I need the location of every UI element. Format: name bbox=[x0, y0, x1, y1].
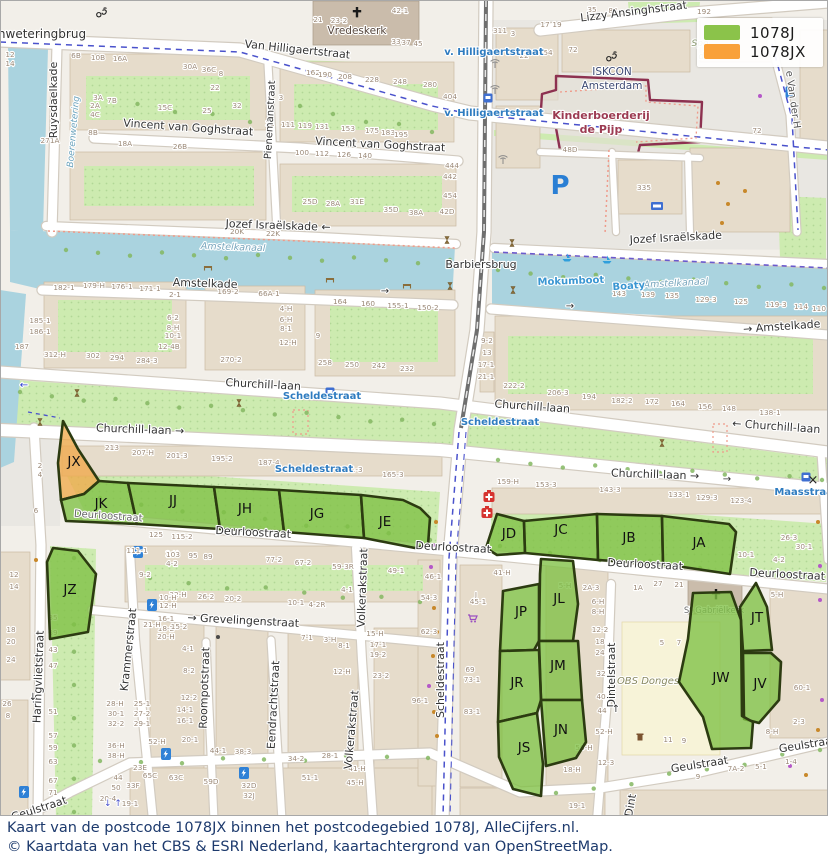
house-number: 125 bbox=[734, 297, 748, 306]
house-number: 50 bbox=[111, 783, 121, 792]
house-number: 1-4 bbox=[785, 757, 797, 766]
house-number: 14-1 bbox=[177, 705, 194, 714]
house-number: 2 bbox=[38, 461, 43, 470]
house-number: 46-1 bbox=[425, 572, 442, 581]
house-number: 54 bbox=[543, 48, 553, 57]
house-number: 59D bbox=[204, 777, 219, 786]
street-label: → bbox=[723, 474, 731, 485]
house-number: 67-2 bbox=[295, 558, 312, 567]
postcode-label-JT: JT bbox=[750, 610, 764, 626]
house-number: 8 bbox=[6, 711, 11, 720]
postcode-label-JJ: JJ bbox=[168, 493, 177, 509]
house-number: 44-1 bbox=[210, 746, 227, 755]
tree bbox=[224, 256, 228, 260]
caption-line-2: © Kaartdata van het CBS & ESRI Nederland… bbox=[7, 838, 828, 857]
house-number: 284-3 bbox=[136, 356, 158, 365]
house-number: 9-2 bbox=[481, 336, 493, 345]
poi-dot bbox=[435, 734, 439, 738]
house-number: 11 bbox=[663, 735, 672, 744]
cart-icon-part bbox=[471, 621, 473, 623]
tree bbox=[262, 757, 266, 761]
tree bbox=[384, 258, 388, 262]
house-number: 18 bbox=[6, 625, 16, 634]
house-number: 65C bbox=[143, 771, 157, 780]
street-label: nweteringbrug bbox=[0, 27, 86, 41]
postcode-label-JZ: JZ bbox=[62, 582, 76, 598]
screenshot: P×6B10B16A30A36C8223A7B15C25322A4C8B271A… bbox=[0, 0, 828, 861]
house-number: 213 bbox=[105, 443, 119, 452]
house-number: 26 bbox=[2, 699, 12, 708]
street-label: → bbox=[566, 301, 574, 312]
house-number: 30A bbox=[183, 62, 197, 71]
house-number: 63 bbox=[48, 757, 58, 766]
house-number: 20-H bbox=[157, 632, 174, 641]
house-number: 2-1 bbox=[169, 290, 181, 299]
house-number: 4-2 bbox=[773, 555, 785, 564]
house-number: 195-2 bbox=[211, 454, 232, 463]
poi-label: OBS Donges bbox=[617, 676, 679, 687]
house-number: 32-2 bbox=[108, 719, 125, 728]
house-number: 182-2 bbox=[611, 396, 632, 405]
house-number: 29-1 bbox=[134, 719, 151, 728]
house-number: 33F bbox=[126, 781, 139, 790]
house-number: 42-1 bbox=[392, 6, 409, 15]
house-number: 131 bbox=[315, 122, 329, 131]
house-number: 12 bbox=[5, 50, 14, 59]
house-number: 8-2 bbox=[183, 666, 195, 675]
tree bbox=[528, 462, 532, 466]
postcode-label-JP: JP bbox=[514, 604, 527, 620]
tree bbox=[430, 130, 434, 134]
house-number: 15-2 bbox=[171, 622, 188, 631]
house-number: 38A bbox=[409, 208, 423, 217]
house-number: 172 bbox=[645, 397, 659, 406]
house-number: 4-H bbox=[280, 304, 293, 313]
trash-icon-part bbox=[637, 734, 644, 736]
house-number: 21 bbox=[313, 15, 322, 24]
courtyard-dots bbox=[84, 166, 254, 206]
house-number: 133-1 bbox=[668, 490, 689, 499]
house-number: 83-1 bbox=[464, 707, 481, 716]
house-number: 21-H bbox=[143, 620, 160, 629]
tree bbox=[221, 756, 225, 760]
house-number: 59 bbox=[48, 743, 58, 752]
house-number: 119-3 bbox=[765, 300, 787, 309]
postcode-label-JD: JD bbox=[501, 526, 516, 542]
house-number: 140 bbox=[358, 151, 372, 160]
house-number: 6-H bbox=[592, 597, 605, 606]
tree bbox=[368, 419, 372, 423]
house-number: 111 bbox=[281, 120, 295, 129]
house-number: 9 bbox=[696, 772, 701, 781]
house-number: 31E bbox=[350, 197, 364, 206]
house-number: 59-3R bbox=[332, 562, 354, 571]
house-number: 194 bbox=[582, 392, 596, 401]
house-number: 100 bbox=[295, 148, 309, 157]
house-number: 25-1 bbox=[134, 699, 151, 708]
postcode-label-JS: JS bbox=[517, 740, 531, 756]
house-number: 242 bbox=[372, 361, 386, 370]
tree bbox=[416, 261, 420, 265]
house-number: 45-1 bbox=[470, 597, 487, 606]
house-number: 442 bbox=[443, 172, 457, 181]
trash-icon bbox=[637, 734, 644, 741]
house-number: 5-1 bbox=[755, 762, 767, 771]
house-number: 12-2 bbox=[592, 625, 609, 634]
house-number: 150-2 bbox=[417, 303, 438, 312]
house-number: 187 bbox=[15, 342, 29, 351]
house-number: 9 bbox=[316, 331, 321, 340]
postcode-label-JB: JB bbox=[621, 530, 635, 546]
house-number: 138-1 bbox=[759, 408, 780, 417]
house-number: 19 bbox=[552, 20, 562, 29]
house-number: 17-1 bbox=[478, 360, 495, 369]
house-number: 190 bbox=[318, 70, 332, 79]
house-number: 114 bbox=[794, 302, 808, 311]
house-number: 135 bbox=[665, 291, 679, 300]
house-number: 139 bbox=[641, 290, 655, 299]
tree bbox=[302, 590, 306, 594]
house-number: 228 bbox=[365, 75, 379, 84]
house-number: 6-H bbox=[280, 315, 293, 324]
house-number: 62-3 bbox=[421, 627, 438, 636]
house-number: 14 bbox=[9, 582, 19, 591]
house-number: 18 bbox=[595, 637, 605, 646]
house-number: 38-H bbox=[107, 751, 124, 760]
street-label: Boaty bbox=[612, 280, 646, 293]
road-zijstraat-2 bbox=[688, 155, 690, 232]
courtyard-dots bbox=[145, 565, 423, 591]
tree bbox=[225, 586, 229, 590]
tree bbox=[432, 422, 436, 426]
tree bbox=[96, 251, 100, 255]
house-number: 4 bbox=[38, 470, 43, 479]
house-number: 15C bbox=[158, 103, 172, 112]
tree bbox=[192, 253, 196, 257]
house-number: 258 bbox=[318, 358, 332, 367]
street-label: Scheldestraat bbox=[275, 464, 354, 475]
courtyard-dots bbox=[292, 176, 442, 212]
poi-dot bbox=[816, 728, 820, 732]
house-number: 32J bbox=[243, 791, 254, 800]
tree bbox=[757, 285, 761, 289]
street-label: v. Hilligaertstraat bbox=[444, 108, 544, 119]
house-number: 148 bbox=[722, 404, 736, 413]
postcode-label-JX: JX bbox=[66, 454, 80, 470]
house-number: 19-1 bbox=[569, 801, 586, 810]
tree bbox=[81, 398, 85, 402]
poi-dot bbox=[720, 221, 724, 225]
house-number: 19-1 bbox=[122, 799, 139, 808]
house-number: 23-2 bbox=[373, 671, 390, 680]
house-number: 207-H bbox=[132, 448, 154, 457]
street-label: ↑ bbox=[612, 704, 620, 715]
trash-icon-part bbox=[638, 735, 643, 741]
house-number: 454 bbox=[443, 191, 457, 200]
house-number: 9-2 bbox=[139, 570, 151, 579]
house-number: 125 bbox=[149, 530, 163, 539]
house-number: 51-1 bbox=[302, 773, 319, 782]
poi-label: de Pijp bbox=[580, 123, 623, 136]
poi-dot bbox=[818, 564, 822, 568]
street-label: Barbiersbrug bbox=[445, 258, 516, 271]
map-caption: Kaart van de postcode 1078JX binnen het … bbox=[0, 816, 828, 861]
house-number: 126 bbox=[337, 150, 351, 159]
street-label: Scheldestraat bbox=[461, 417, 540, 428]
tree bbox=[248, 120, 252, 124]
house-number: 49-1 bbox=[388, 566, 405, 575]
postcode-label-JE: JE bbox=[378, 514, 392, 530]
sign-icon-part bbox=[653, 205, 661, 208]
poi-dot bbox=[726, 202, 730, 206]
postcode-label-JK: JK bbox=[94, 496, 109, 512]
house-number: 112 bbox=[315, 149, 329, 158]
house-number: 8 bbox=[219, 69, 224, 78]
house-number: 444 bbox=[445, 161, 459, 170]
house-number: 280 bbox=[423, 80, 437, 89]
tree bbox=[135, 102, 139, 106]
house-number: 12-2 bbox=[181, 693, 198, 702]
house-number: 27-2 bbox=[134, 709, 151, 718]
tree bbox=[50, 394, 54, 398]
street-label: ↓ ↑ bbox=[104, 799, 122, 809]
tree bbox=[113, 397, 117, 401]
tree bbox=[364, 120, 368, 124]
house-number: 25 bbox=[202, 106, 211, 115]
house-number: 175 bbox=[365, 126, 379, 135]
house-number: 3 bbox=[511, 29, 516, 38]
postcode-label-JG: JG bbox=[309, 506, 324, 522]
street-label: Mokumboot bbox=[537, 275, 604, 288]
house-number: 159-H bbox=[497, 477, 519, 486]
house-number: 33 bbox=[391, 37, 401, 46]
courtyard-dots bbox=[508, 336, 813, 394]
house-number: 153 bbox=[341, 124, 355, 133]
tree bbox=[64, 248, 68, 252]
house-number: 3-H bbox=[324, 635, 337, 644]
house-number: 5-H bbox=[771, 590, 784, 599]
house-number: 52-H bbox=[595, 727, 612, 736]
house-number: 335 bbox=[637, 183, 651, 192]
poi-dot bbox=[716, 181, 720, 185]
house-number: 26-3 bbox=[781, 533, 798, 542]
postcode-label-JW: JW bbox=[711, 670, 729, 686]
house-number: 35D bbox=[384, 205, 399, 214]
house-number: 17 bbox=[540, 20, 550, 29]
house-number: 47 bbox=[48, 661, 58, 670]
street-label: ↓ bbox=[29, 692, 37, 703]
tree bbox=[298, 104, 302, 108]
house-number: 32D bbox=[242, 781, 257, 790]
house-number: 36-H bbox=[107, 741, 124, 750]
house-number: 19-2 bbox=[370, 650, 387, 659]
house-number: 111-1 bbox=[126, 546, 147, 555]
house-number: 36C bbox=[202, 65, 216, 74]
house-number: 4-2 bbox=[166, 559, 178, 568]
tree bbox=[397, 122, 401, 126]
house-number: 30-1 bbox=[108, 709, 125, 718]
house-number: 48D bbox=[563, 145, 578, 154]
house-number: 12-3 bbox=[598, 758, 615, 767]
poi-dot bbox=[216, 635, 220, 639]
house-number: 41-H bbox=[493, 568, 510, 577]
house-number: 43 bbox=[48, 645, 58, 654]
tree bbox=[593, 463, 597, 467]
house-number: 12 bbox=[9, 570, 18, 579]
tree bbox=[755, 476, 759, 480]
house-number: 8-1 bbox=[338, 641, 350, 650]
house-number: 222-2 bbox=[503, 381, 524, 390]
house-number: 6 bbox=[34, 506, 39, 515]
street-label: Scheldestraat bbox=[434, 641, 447, 718]
tree bbox=[426, 756, 430, 760]
house-number: 10B bbox=[91, 53, 105, 62]
road-zijstraat-1 bbox=[612, 152, 616, 232]
bus-icon bbox=[484, 94, 493, 103]
tree bbox=[180, 761, 184, 765]
poi-dot bbox=[816, 520, 820, 524]
street-label: ← bbox=[20, 380, 28, 391]
building bbox=[690, 148, 790, 232]
legend-swatch-1078JX bbox=[704, 44, 740, 59]
parkP-icon-part: P bbox=[550, 171, 569, 201]
building bbox=[620, 790, 828, 816]
ev-icon bbox=[161, 748, 171, 760]
courtyard-dots bbox=[58, 300, 172, 352]
house-number: 103 bbox=[166, 550, 180, 559]
house-number: 192 bbox=[697, 7, 711, 16]
house-number: 160 bbox=[361, 299, 375, 308]
house-number: 182-1 bbox=[53, 283, 74, 292]
tree bbox=[379, 595, 383, 599]
poi-label: ISKCON bbox=[592, 66, 632, 78]
house-number: 5 bbox=[660, 638, 665, 647]
house-number: 63C bbox=[169, 773, 183, 782]
house-number: 164 bbox=[333, 297, 347, 306]
tree bbox=[241, 408, 245, 412]
house-number: 95 bbox=[188, 551, 197, 560]
tree bbox=[320, 258, 324, 262]
house-number: 18A bbox=[118, 139, 132, 148]
poi-dot bbox=[427, 684, 431, 688]
house-number: 185-1 bbox=[29, 316, 50, 325]
house-number: 21-1 bbox=[478, 372, 495, 381]
house-number: 12-H bbox=[159, 601, 176, 610]
house-number: 54-3 bbox=[421, 593, 438, 602]
map-container[interactable]: P×6B10B16A30A36C8223A7B15C25322A4C8B271A… bbox=[0, 0, 828, 816]
house-number: 51 bbox=[48, 707, 57, 716]
house-number: 153-3 bbox=[535, 480, 557, 489]
cart-icon-part bbox=[474, 621, 476, 623]
house-number: 22 bbox=[210, 83, 219, 92]
house-number: 45 bbox=[413, 39, 422, 48]
house-number: 164 bbox=[671, 399, 685, 408]
street-label: Amstelkanaal bbox=[200, 241, 266, 254]
house-number: 20 bbox=[6, 637, 16, 646]
house-number: 20-2 bbox=[225, 594, 242, 603]
tree bbox=[400, 417, 404, 421]
poi-label: Amsterdam bbox=[582, 80, 643, 92]
house-number: 201-3 bbox=[166, 451, 188, 460]
house-number: 179-H bbox=[83, 281, 105, 290]
house-number: 25D bbox=[303, 197, 318, 206]
house-number: 176-1 bbox=[111, 282, 132, 291]
ev-icon bbox=[147, 599, 157, 611]
house-number: 15-H bbox=[366, 629, 383, 638]
poi-dot bbox=[432, 606, 436, 610]
house-number: 311 bbox=[493, 26, 507, 35]
house-number: 186-1 bbox=[29, 327, 50, 336]
house-number: 8-1 bbox=[280, 324, 292, 333]
house-number: 156 bbox=[698, 402, 712, 411]
tree bbox=[629, 782, 633, 786]
street-label: Amstelkade bbox=[173, 276, 238, 291]
house-number: 72 bbox=[752, 126, 761, 135]
building bbox=[496, 28, 558, 100]
house-number: 13 bbox=[482, 348, 492, 357]
house-number: 89 bbox=[203, 552, 213, 561]
house-number: 96-1 bbox=[412, 696, 429, 705]
postcode-label-JM: JM bbox=[549, 658, 566, 674]
tree bbox=[352, 255, 356, 259]
house-number: 16-1 bbox=[177, 716, 194, 725]
house-number: 42D bbox=[440, 207, 455, 216]
street-label: v. Hilligaertstraat bbox=[444, 47, 544, 58]
legend-label-1078JX: 1078JX bbox=[750, 43, 806, 61]
house-number: 60-1 bbox=[794, 683, 811, 692]
street-label: → bbox=[381, 286, 389, 297]
postcode-label-JL: JL bbox=[552, 591, 565, 607]
tree bbox=[145, 401, 149, 405]
postcode-label-JC: JC bbox=[553, 522, 567, 538]
ev-icon bbox=[19, 786, 29, 798]
house-number: 123-4 bbox=[730, 496, 752, 505]
tree bbox=[72, 810, 76, 814]
house-number: 66A-1 bbox=[258, 289, 279, 298]
house-number: 250 bbox=[345, 360, 359, 369]
house-number: 129-3 bbox=[696, 493, 718, 502]
house-number: 143-3 bbox=[599, 485, 621, 494]
house-number: 2-3 bbox=[793, 717, 805, 726]
house-number: 195 bbox=[394, 130, 408, 139]
house-number: 20-1 bbox=[182, 735, 199, 744]
house-number: 3 bbox=[279, 93, 284, 102]
legend-item-1078J: 1078J bbox=[704, 23, 816, 42]
poi-dot bbox=[818, 598, 822, 602]
house-number: 57 bbox=[48, 731, 58, 740]
house-number: 14 bbox=[5, 59, 15, 68]
tree bbox=[331, 112, 335, 116]
house-number: 1A bbox=[633, 583, 643, 592]
tree bbox=[72, 650, 76, 654]
legend-item-1078JX: 1078JX bbox=[704, 42, 816, 61]
poi-label: Kinderboerderij bbox=[552, 109, 650, 122]
house-number: 7-1 bbox=[301, 633, 313, 642]
tree bbox=[128, 253, 132, 257]
house-number: 7 bbox=[677, 638, 682, 647]
house-number: 206-3 bbox=[547, 388, 569, 397]
house-number: 8-H bbox=[592, 607, 605, 616]
house-number: 69 bbox=[465, 665, 475, 674]
tree bbox=[72, 777, 76, 781]
map-canvas[interactable]: P×6B10B16A30A36C8223A7B15C25322A4C8B271A… bbox=[0, 0, 828, 816]
house-number: 17-1 bbox=[370, 640, 387, 649]
tree bbox=[304, 411, 308, 415]
tree bbox=[592, 786, 596, 790]
house-number: 248 bbox=[393, 77, 407, 86]
street-label: Scheldestraat bbox=[283, 391, 362, 402]
house-number: 37 bbox=[401, 38, 411, 47]
